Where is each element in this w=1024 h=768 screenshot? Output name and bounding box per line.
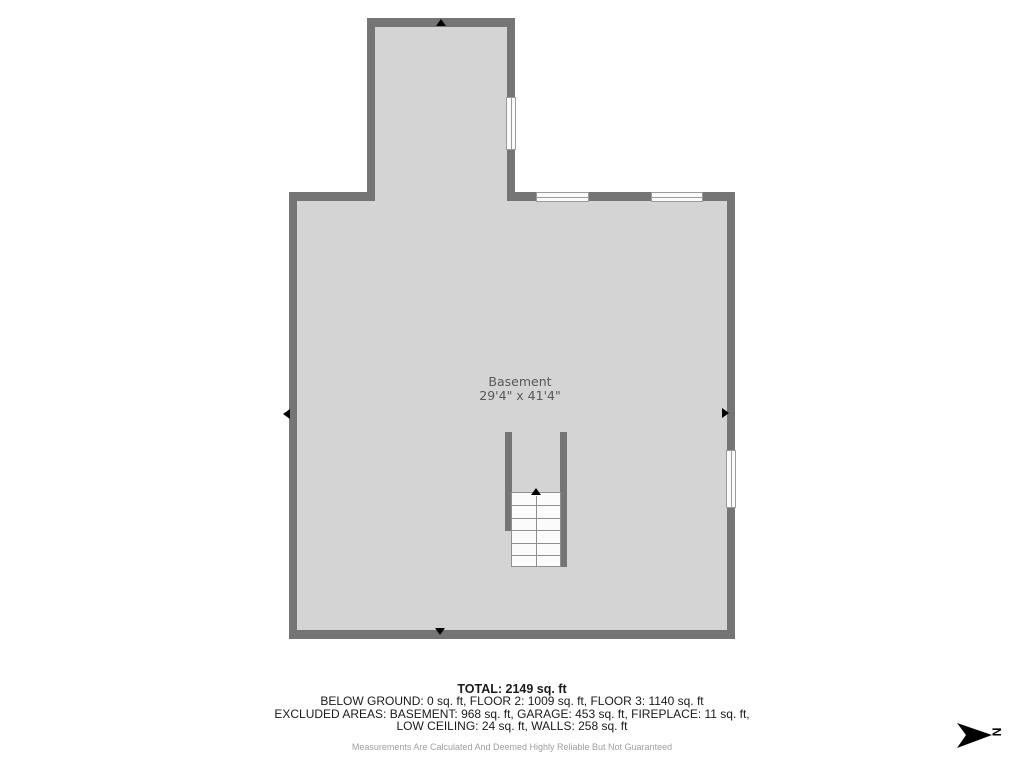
window-east-wall — [726, 450, 736, 508]
window-top-left — [536, 192, 589, 202]
area-summary: TOTAL: 2149 sq. ft BELOW GROUND: 0 sq. f… — [0, 683, 1024, 753]
window-mullion — [537, 197, 588, 198]
window-top-right — [651, 192, 703, 202]
stair-wall-right — [560, 432, 567, 567]
east-wall-marker-icon — [722, 408, 729, 418]
compass-north-label: N — [989, 728, 1003, 737]
window-tower-east — [506, 97, 516, 150]
window-mullion — [511, 98, 512, 149]
room-dimensions: 29'4" x 41'4" — [400, 389, 640, 403]
south-wall-marker-icon — [435, 628, 445, 635]
room-name: Basement — [400, 375, 640, 389]
excluded-areas-text-line2: LOW CEILING: 24 sq. ft, WALLS: 258 sq. f… — [0, 720, 1024, 732]
room-label: Basement 29'4" x 41'4" — [400, 375, 640, 402]
floor-areas-text: BELOW GROUND: 0 sq. ft, FLOOR 2: 1009 sq… — [0, 695, 1024, 707]
floor-plan-page: Basement 29'4" x 41'4" TOTAL: 2149 sq. f… — [0, 0, 1024, 768]
window-mullion — [731, 451, 732, 507]
west-wall-marker-icon — [283, 409, 290, 419]
stair-up-arrow-icon — [531, 488, 541, 495]
window-mullion — [652, 197, 702, 198]
stair-direction-line — [536, 496, 537, 567]
north-wall-marker-icon — [436, 19, 446, 26]
floor-tower — [375, 27, 507, 207]
disclaimer-text: Measurements Are Calculated And Deemed H… — [0, 741, 1024, 753]
